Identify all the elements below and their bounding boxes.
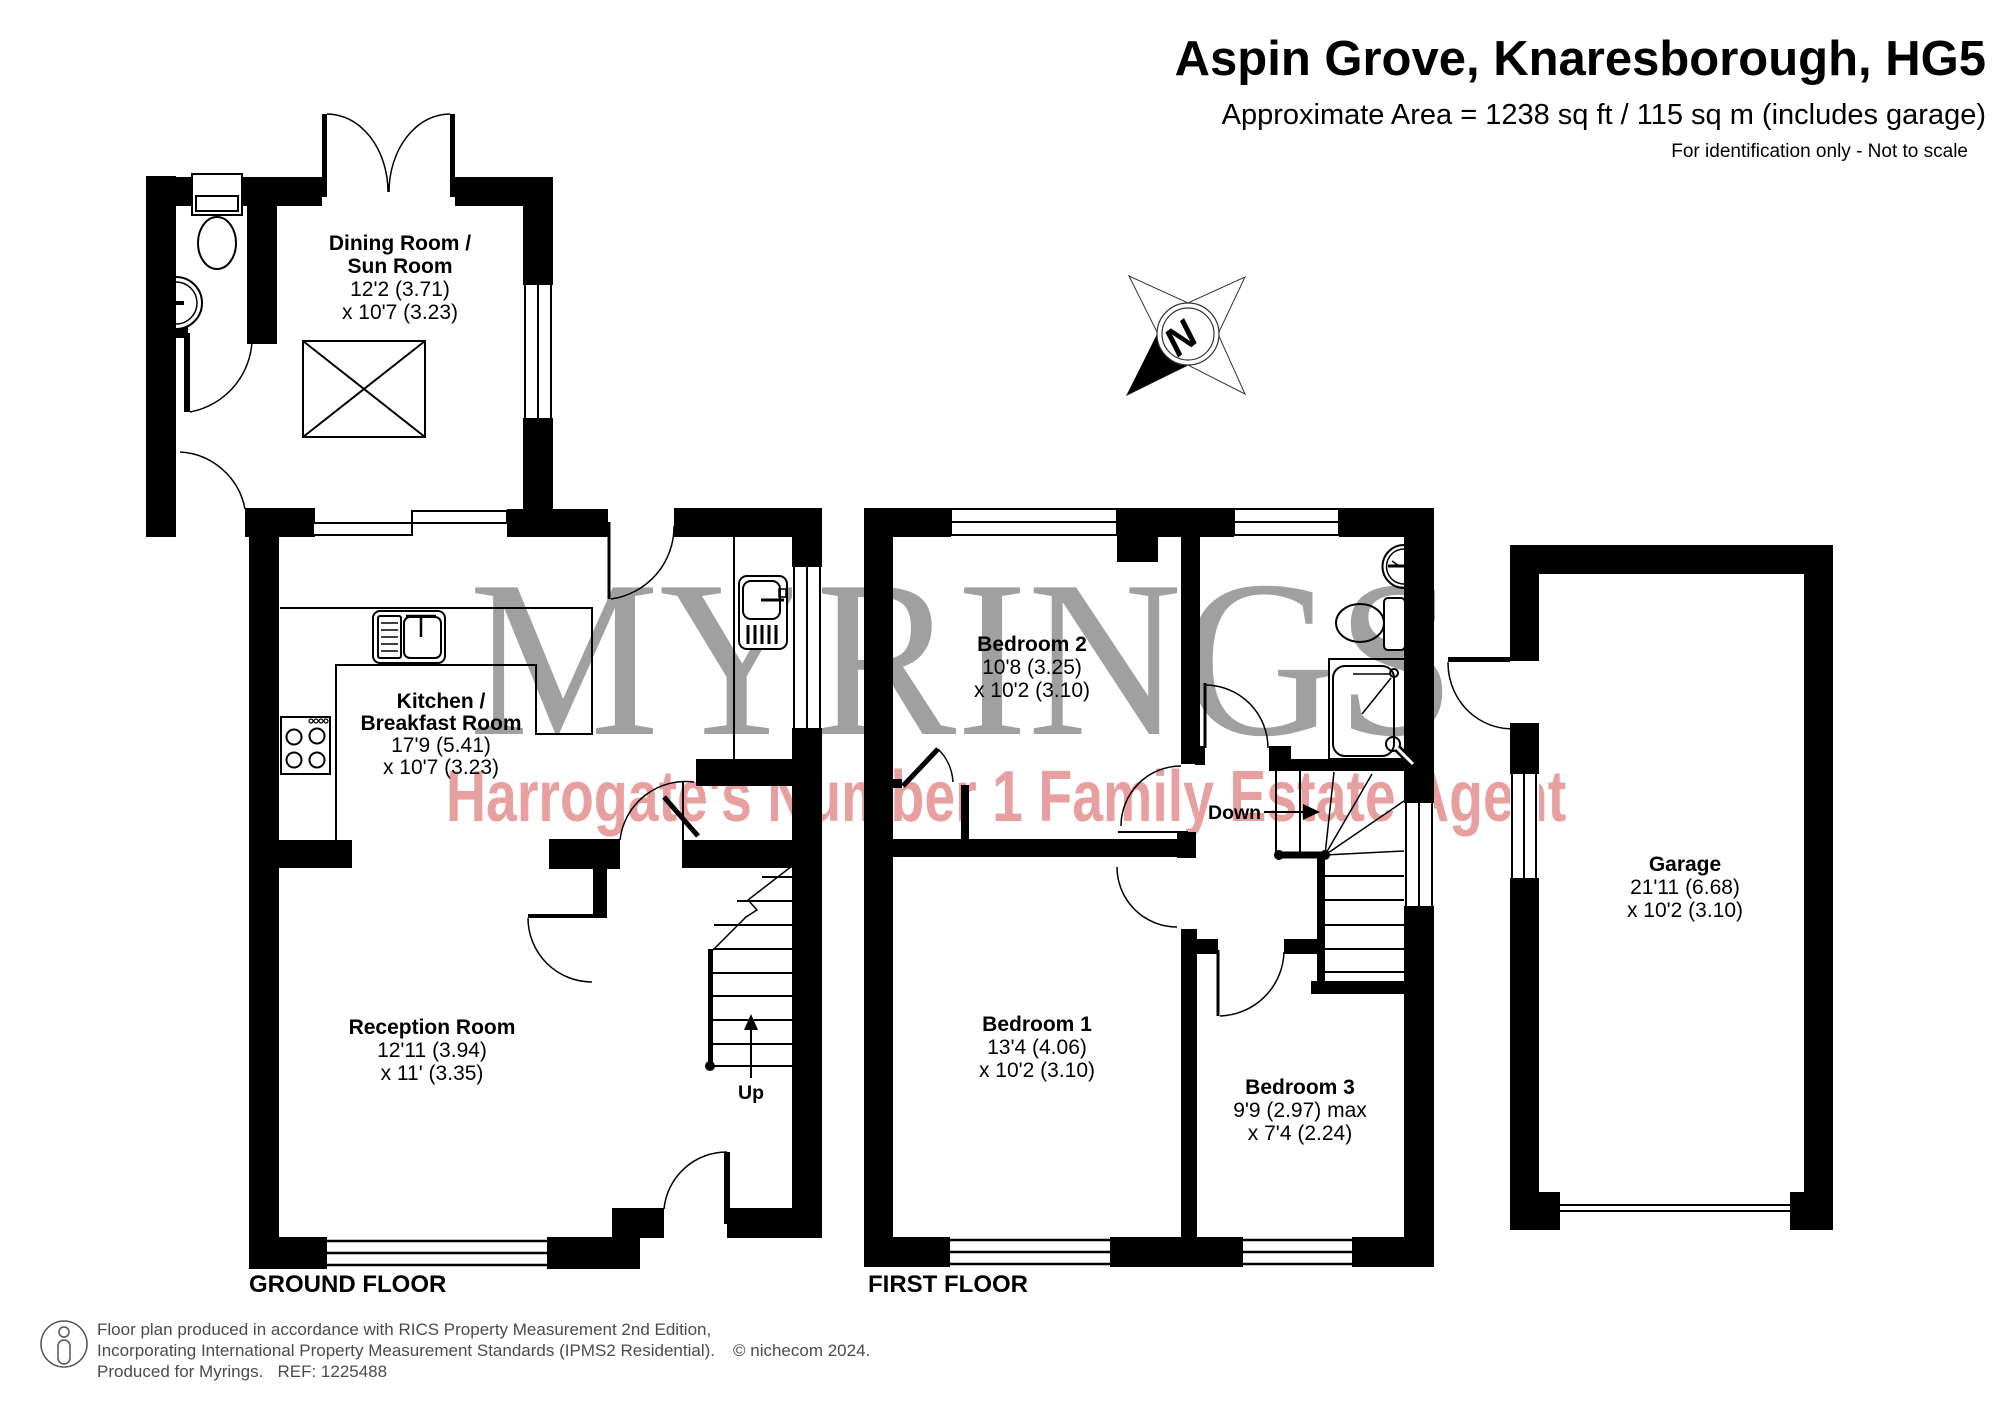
svg-text:Aspin Grove, Knaresborough, HG: Aspin Grove, Knaresborough, HG5 [1175, 32, 1986, 86]
svg-text:Up: Up [738, 1082, 764, 1104]
svg-text:Down: Down [1208, 802, 1261, 824]
svg-text:Floor plan produced in accorda: Floor plan produced in accordance with R… [97, 1320, 711, 1339]
svg-text:13'4 (4.06): 13'4 (4.06) [987, 1036, 1087, 1059]
svg-text:x 10'2 (3.10): x 10'2 (3.10) [1627, 899, 1743, 922]
svg-text:9'9 (2.97) max: 9'9 (2.97) max [1233, 1099, 1367, 1122]
svg-text:x 10'7 (3.23): x 10'7 (3.23) [383, 756, 499, 779]
svg-text:© nichecom 2024.: © nichecom 2024. [733, 1341, 870, 1360]
svg-text:Bedroom 3: Bedroom 3 [1245, 1076, 1355, 1099]
svg-text:Incorporating International Pr: Incorporating International Property Mea… [97, 1341, 715, 1360]
svg-text:Breakfast Room: Breakfast Room [360, 712, 521, 735]
svg-text:Kitchen /: Kitchen / [397, 690, 486, 713]
svg-text:12'2 (3.71): 12'2 (3.71) [350, 278, 450, 301]
svg-text:FIRST FLOOR: FIRST FLOOR [868, 1271, 1028, 1298]
svg-text:Produced for Myrings. REF: 1: Produced for Myrings. REF: 1225488 [97, 1362, 387, 1381]
svg-text:17'9 (5.41): 17'9 (5.41) [391, 734, 491, 757]
svg-text:Sun Room: Sun Room [348, 255, 453, 278]
svg-text:Garage: Garage [1649, 853, 1721, 876]
svg-text:For identification only - Not: For identification only - Not to scale [1671, 141, 1968, 162]
svg-text:MYRINGS: MYRINGS [469, 536, 1455, 784]
svg-text:Bedroom 2: Bedroom 2 [977, 633, 1087, 656]
svg-text:Bedroom 1: Bedroom 1 [982, 1013, 1092, 1036]
svg-text:x 10'7 (3.23): x 10'7 (3.23) [342, 301, 458, 324]
svg-text:Approximate Area = 1238 sq ft: Approximate Area = 1238 sq ft / 115 sq m… [1222, 99, 1986, 131]
svg-text:Dining Room /: Dining Room / [329, 232, 471, 255]
svg-text:x 7'4 (2.24): x 7'4 (2.24) [1248, 1122, 1352, 1145]
svg-text:x 11' (3.35): x 11' (3.35) [381, 1062, 484, 1085]
svg-text:x 10'2 (3.10): x 10'2 (3.10) [974, 679, 1090, 702]
svg-text:21'11 (6.68): 21'11 (6.68) [1630, 876, 1740, 899]
svg-text:x 10'2 (3.10): x 10'2 (3.10) [979, 1059, 1095, 1082]
svg-text:Reception Room: Reception Room [349, 1016, 516, 1039]
svg-text:GROUND FLOOR: GROUND FLOOR [249, 1271, 446, 1298]
svg-text:12'11 (3.94): 12'11 (3.94) [377, 1039, 487, 1062]
svg-text:10'8 (3.25): 10'8 (3.25) [982, 656, 1082, 679]
